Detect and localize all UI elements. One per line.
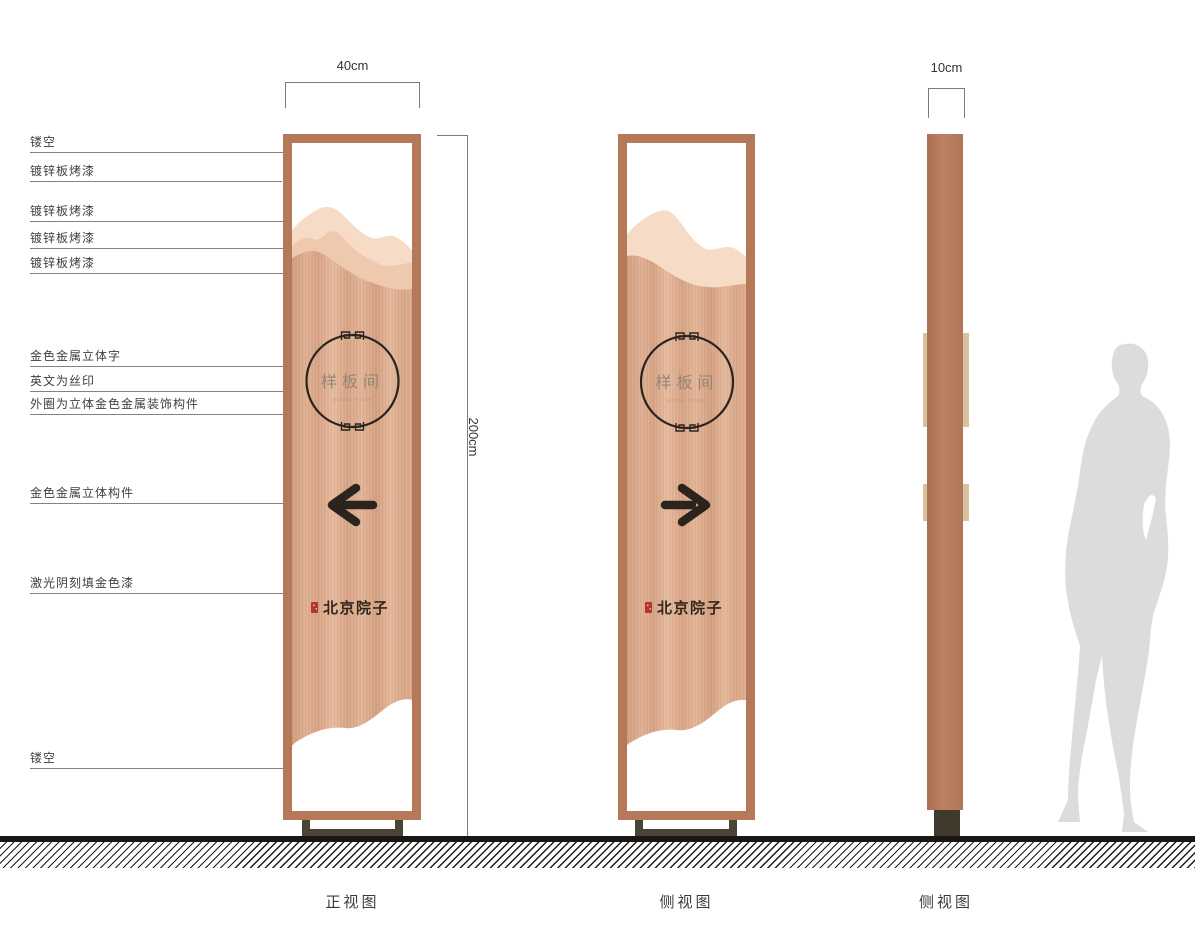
callout-laser-engrave-gold: 激光阴刻填金色漆 bbox=[30, 576, 287, 594]
callout-label: 镀锌板烤漆 bbox=[30, 164, 95, 178]
callout-label: 金色金属立体字 bbox=[30, 349, 121, 363]
dimension-bracket-40cm bbox=[285, 82, 420, 108]
side-profile-panel bbox=[920, 134, 972, 810]
seal-icon bbox=[645, 602, 652, 613]
logo-text: 北京院子 bbox=[657, 599, 723, 617]
callout-galvanized-frame: 镀锌板烤漆 bbox=[30, 164, 282, 182]
logo-group: 北京院子 bbox=[645, 599, 723, 617]
caption-side-profile-view: 侧视图 bbox=[888, 891, 1004, 912]
caption-front-view: 正视图 bbox=[285, 891, 420, 912]
person-silhouette bbox=[1040, 336, 1195, 838]
seal-mark bbox=[647, 605, 649, 607]
person-silhouette-shape bbox=[1058, 344, 1170, 832]
logo-text: 北京院子 bbox=[323, 599, 389, 617]
callout-label: 镂空 bbox=[30, 751, 56, 765]
emblem-english-subtext: MODEL ROOM bbox=[333, 397, 372, 402]
callout-label: 金色金属立体构件 bbox=[30, 486, 134, 500]
stand-bar bbox=[635, 829, 737, 836]
callout-label: 英文为丝印 bbox=[30, 374, 95, 388]
dimension-label-200cm: 200cm bbox=[465, 407, 481, 467]
wood-grain-texture bbox=[292, 251, 412, 746]
callout-label: 镀锌板烤漆 bbox=[30, 256, 95, 270]
front-view-panel: 样板间 MODEL ROOM 北京院子 bbox=[283, 134, 421, 820]
callout-label: 激光阴刻填金色漆 bbox=[30, 576, 134, 590]
dimension-line-200cm bbox=[467, 135, 468, 836]
wood-grain-texture bbox=[627, 255, 746, 745]
caption-side-view: 侧视图 bbox=[618, 891, 755, 912]
panel-slab bbox=[927, 134, 963, 810]
logo-group: 北京院子 bbox=[311, 599, 389, 617]
callout-label: 镂空 bbox=[30, 135, 56, 149]
side-view-panel: 样板间 MODEL ROOM 北京院子 bbox=[618, 134, 755, 820]
emblem-text: 样板间 bbox=[321, 373, 384, 391]
stand-block bbox=[934, 810, 960, 836]
emblem-text: 样板间 bbox=[655, 374, 718, 392]
callout-galvanized-layer2: 镀锌板烤漆 bbox=[30, 231, 288, 249]
callout-hollow-bottom: 镂空 bbox=[30, 751, 302, 769]
callout-label: 外圈为立体金色金属装饰构件 bbox=[30, 397, 199, 411]
emblem-english-subtext: MODEL ROOM bbox=[668, 398, 707, 403]
callout-label: 镀锌板烤漆 bbox=[30, 204, 95, 218]
dimension-bracket-10cm bbox=[928, 88, 965, 118]
callout-galvanized-layer1: 镀锌板烤漆 bbox=[30, 204, 293, 222]
callout-galvanized-layer3: 镀锌板烤漆 bbox=[30, 256, 290, 274]
design-drawing-canvas: 镂空 镀锌板烤漆 镀锌板烤漆 镀锌板烤漆 镀锌板烤漆 金色金属立体字 英文为丝印… bbox=[0, 0, 1195, 927]
seal-mark bbox=[650, 608, 652, 610]
dimension-connector-200cm bbox=[437, 135, 467, 136]
seal-icon bbox=[311, 602, 318, 613]
ground-hatch bbox=[0, 842, 1195, 868]
dimension-label-40cm: 40cm bbox=[285, 58, 420, 73]
callout-label: 镀锌板烤漆 bbox=[30, 231, 95, 245]
callout-outer-ring-gold: 外圈为立体金色金属装饰构件 bbox=[30, 397, 316, 415]
stand-bar bbox=[302, 829, 403, 836]
seal-mark bbox=[313, 605, 315, 607]
callout-hollow-top: 镂空 bbox=[30, 135, 306, 153]
seal-mark bbox=[316, 608, 318, 610]
dimension-label-10cm: 10cm bbox=[908, 60, 985, 75]
